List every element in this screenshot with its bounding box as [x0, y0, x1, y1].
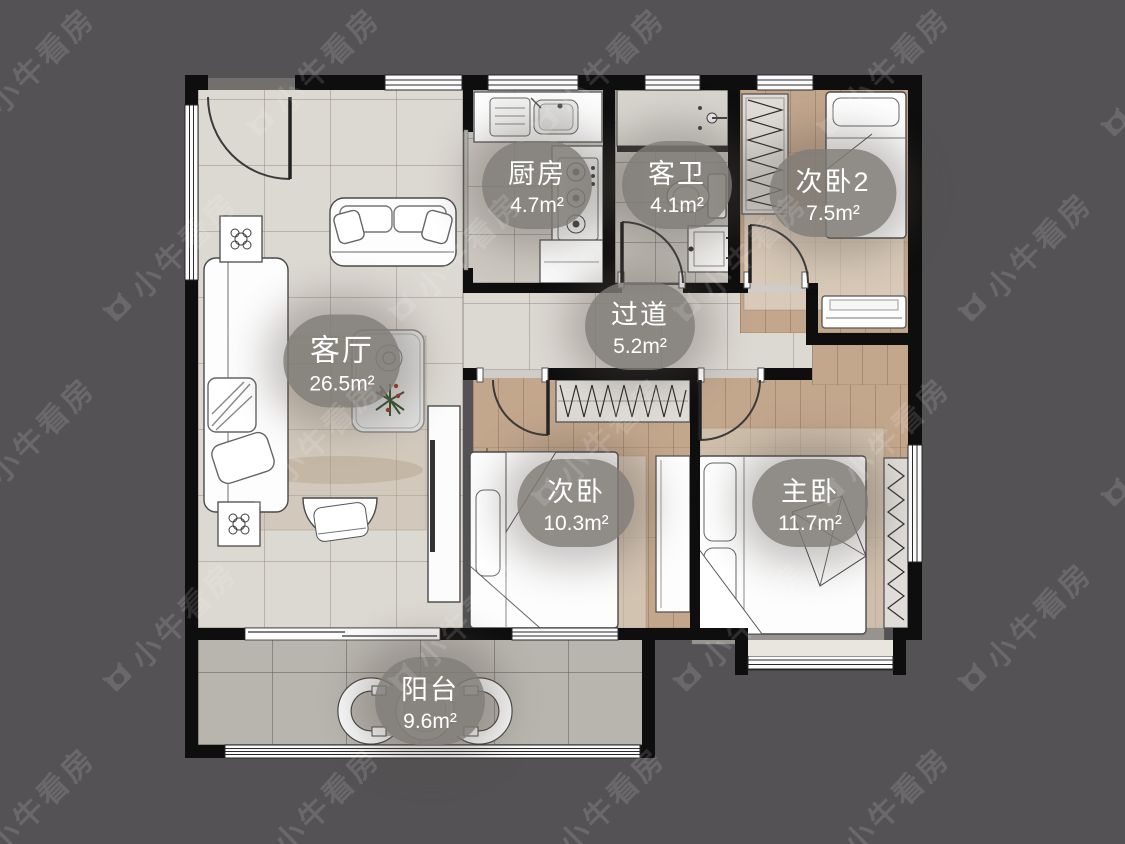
room-label-hallway: 过道5.2m²	[585, 282, 695, 370]
desk	[656, 456, 690, 612]
room-name: 客卫	[648, 152, 706, 191]
room-label-balcony: 阳台9.6m²	[375, 657, 485, 745]
room-area: 26.5m²	[309, 373, 374, 397]
glass-partition	[464, 130, 468, 270]
room-area: 4.7m²	[508, 194, 566, 218]
tv-icon	[430, 440, 435, 552]
room-label-bedroom: 次卧10.3m²	[517, 459, 634, 547]
room-label-kitchen: 厨房4.7m²	[482, 141, 592, 229]
room-area: 10.3m²	[543, 512, 608, 536]
room-name: 阳台	[401, 668, 459, 707]
room-name: 次卧2	[795, 160, 870, 199]
bay-window-sill	[748, 640, 893, 656]
wardrobe	[556, 380, 690, 422]
wardrobe	[884, 458, 908, 628]
room-name: 次卧	[543, 470, 608, 509]
floorplan-linework	[0, 0, 1125, 844]
sliding-door	[245, 628, 440, 640]
room-label-living-room: 客厅26.5m²	[283, 315, 400, 408]
bedroom-door	[493, 380, 548, 435]
sofa	[330, 198, 456, 266]
entry-door	[208, 97, 290, 179]
room-label-bedroom-2: 次卧27.5m²	[769, 149, 896, 237]
tv-cabinet	[428, 406, 460, 602]
entry-mat	[208, 78, 295, 90]
floorplan-canvas: 客厅26.5m²厨房4.7m²客卫4.1m²次卧27.5m²过道5.2m²次卧1…	[0, 0, 1125, 844]
room-name: 过道	[611, 293, 669, 332]
room-area: 4.1m²	[648, 194, 706, 218]
bathroom-door	[622, 222, 683, 283]
room-area: 9.6m²	[401, 710, 459, 734]
room-area: 7.5m²	[795, 202, 870, 226]
room-area: 5.2m²	[611, 335, 669, 359]
side-sofa	[204, 258, 288, 512]
shower-unit	[688, 226, 732, 272]
dresser	[822, 296, 906, 328]
room-name: 主卧	[778, 470, 842, 509]
lounge-chair	[303, 498, 377, 542]
room-label-guest-bathroom: 客卫4.1m²	[622, 141, 732, 229]
room-name: 厨房	[508, 152, 566, 191]
room-area: 11.7m²	[778, 512, 842, 536]
room-name: 客厅	[309, 326, 374, 370]
room-label-master-bedroom: 主卧11.7m²	[752, 459, 868, 547]
